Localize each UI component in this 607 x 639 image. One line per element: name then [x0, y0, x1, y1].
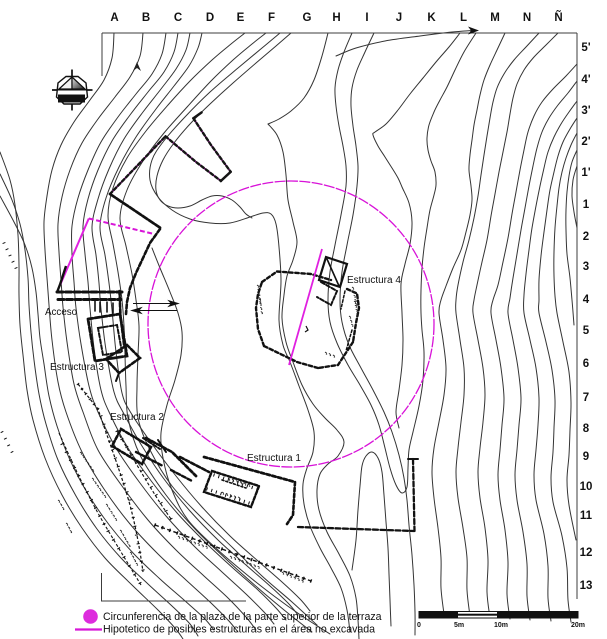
svg-text:0: 0: [417, 622, 421, 629]
svg-text:C: C: [174, 12, 182, 24]
svg-text:L: L: [460, 12, 467, 24]
svg-text:F: F: [268, 12, 275, 24]
svg-text:Estructura 3: Estructura 3: [50, 362, 104, 373]
svg-text:D: D: [206, 12, 214, 24]
svg-text:Ñ: Ñ: [554, 11, 562, 24]
svg-text:9: 9: [583, 451, 589, 463]
svg-text:10: 10: [580, 481, 593, 493]
svg-text:Circunferencia de la plaza de: Circunferencia de la plaza de la parte s…: [103, 611, 382, 623]
svg-text:H: H: [332, 12, 340, 24]
svg-text:8: 8: [583, 423, 590, 435]
svg-text:Estructura 4: Estructura 4: [347, 275, 401, 286]
svg-text:5': 5': [581, 42, 590, 54]
svg-text:B: B: [142, 12, 150, 24]
svg-text:Estructura 1: Estructura 1: [247, 453, 301, 464]
svg-text:3': 3': [581, 105, 590, 117]
svg-text:10m: 10m: [494, 622, 508, 629]
svg-text:M: M: [490, 12, 500, 24]
svg-text:6: 6: [583, 358, 589, 370]
svg-text:I: I: [365, 12, 368, 24]
svg-text:K: K: [427, 12, 436, 24]
svg-text:A: A: [110, 12, 118, 24]
svg-text:Estructura 2: Estructura 2: [110, 412, 164, 423]
svg-text:E: E: [237, 12, 245, 24]
svg-text:5m: 5m: [454, 622, 464, 629]
svg-text:Hipotetico de posibles estruct: Hipotetico de posibles estructuras en el…: [103, 624, 375, 636]
svg-text:5: 5: [583, 325, 590, 337]
svg-text:11: 11: [580, 510, 593, 522]
svg-text:7: 7: [583, 392, 589, 404]
svg-text:13: 13: [580, 580, 593, 592]
svg-text:Acceso: Acceso: [45, 307, 78, 318]
svg-text:3: 3: [583, 261, 589, 273]
svg-text:2: 2: [583, 231, 589, 243]
svg-text:12: 12: [580, 547, 593, 559]
svg-text:G: G: [303, 12, 312, 24]
svg-text:2': 2': [581, 136, 590, 148]
svg-text:4: 4: [583, 294, 590, 306]
svg-text:1: 1: [583, 199, 590, 211]
svg-text:N: N: [523, 12, 531, 24]
svg-text:1': 1': [581, 167, 590, 179]
svg-text:4': 4': [581, 74, 590, 86]
svg-text:J: J: [396, 12, 402, 24]
svg-text:20m: 20m: [571, 622, 585, 629]
